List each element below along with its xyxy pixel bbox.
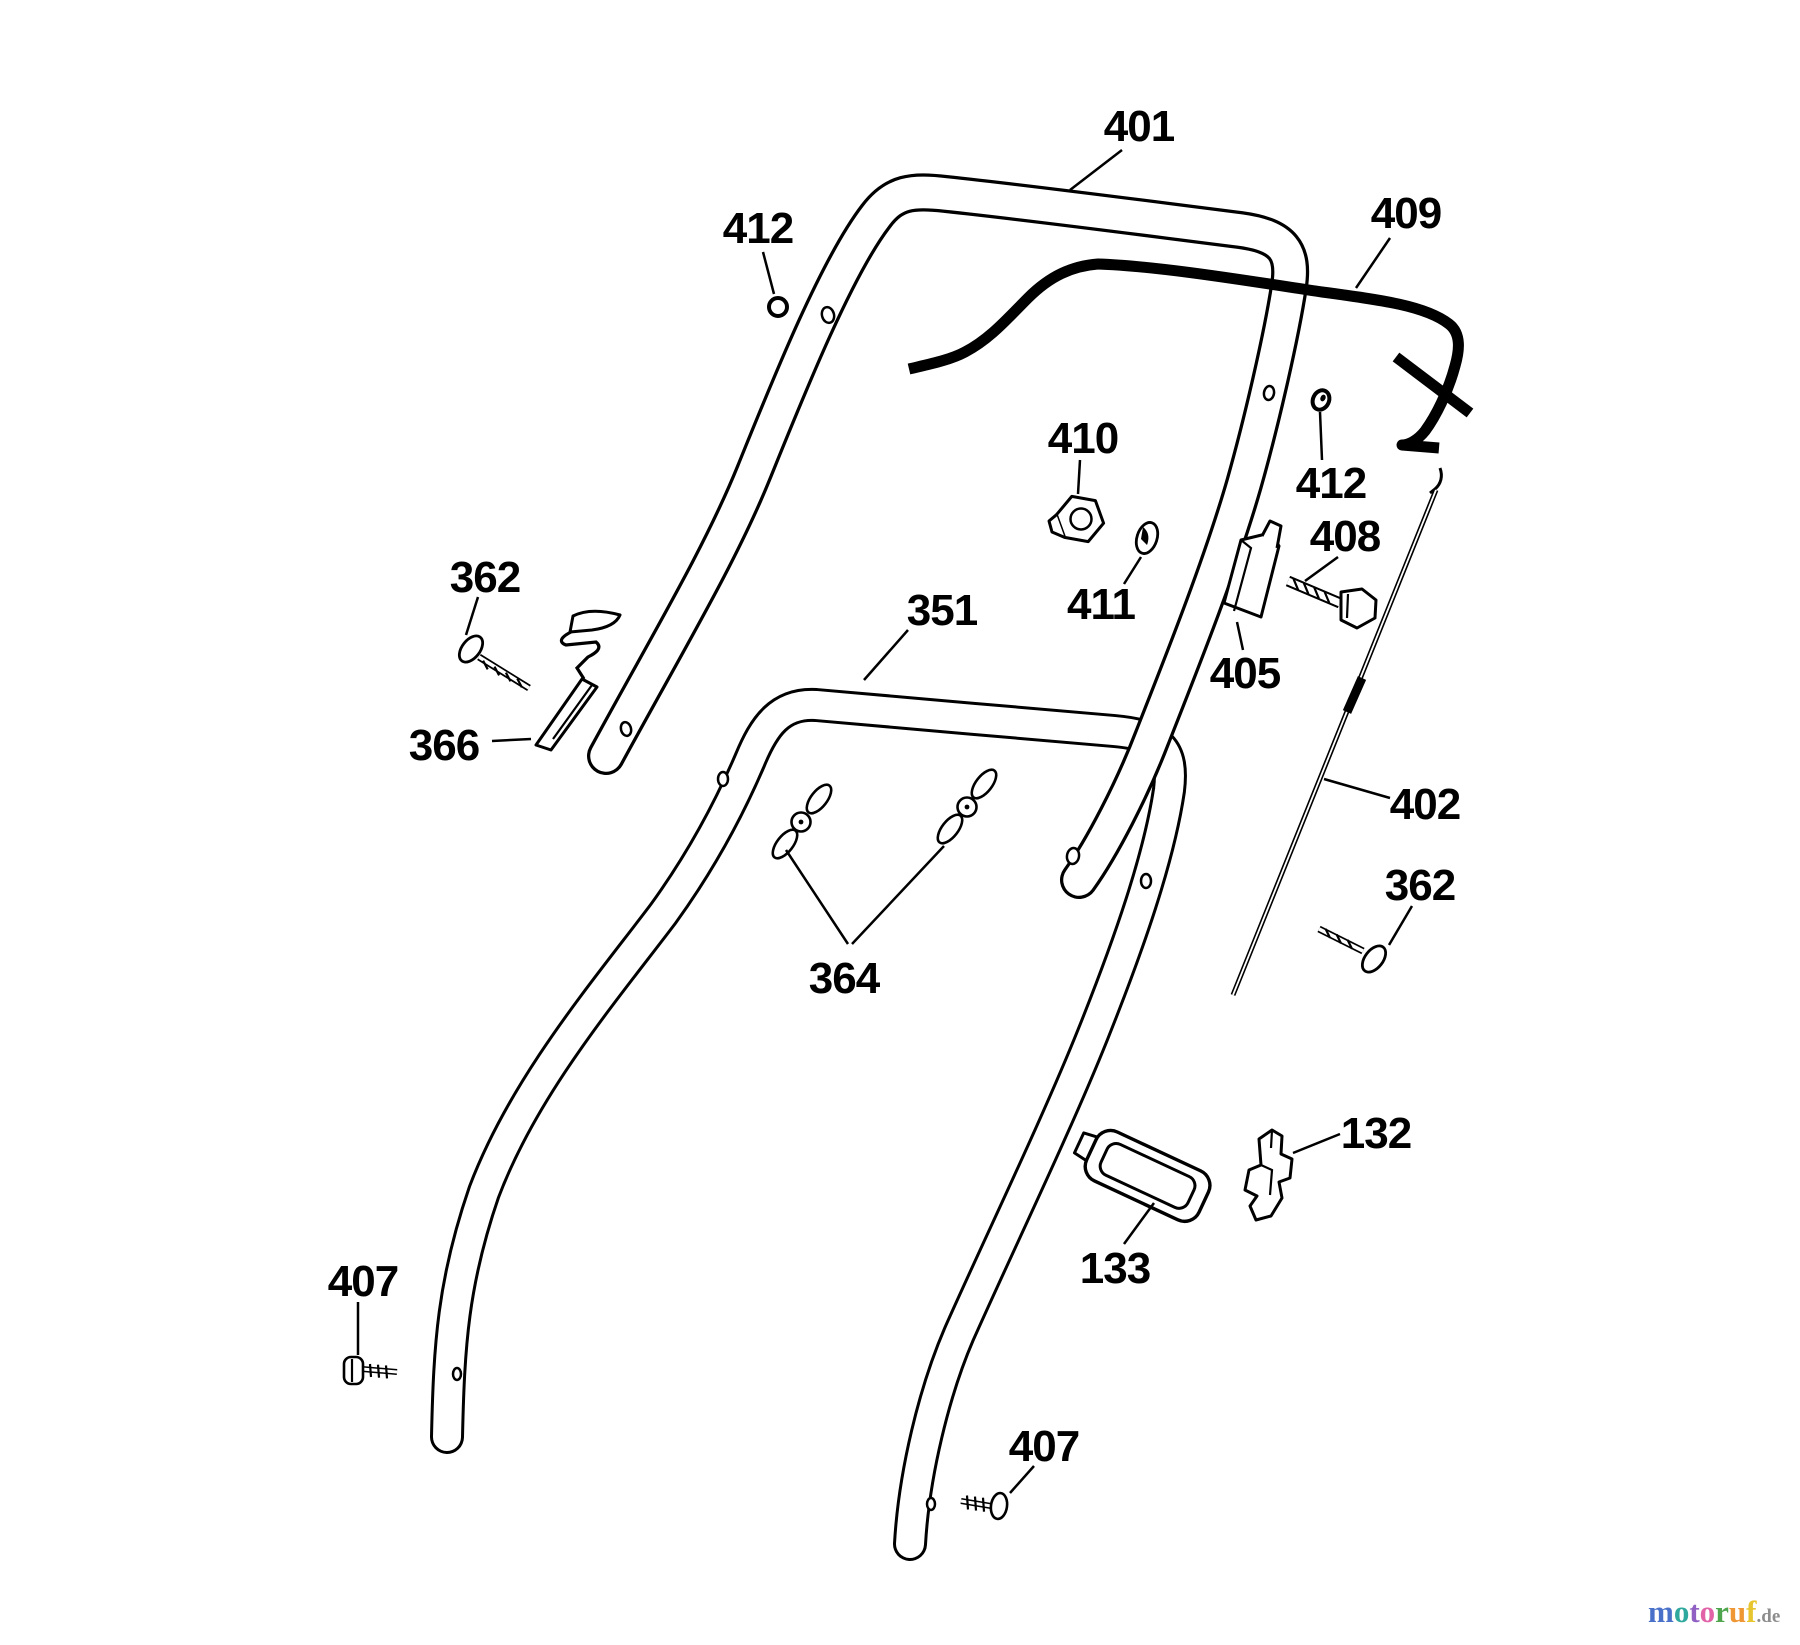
part-label-407-right: 407 xyxy=(1009,1422,1079,1471)
part-label-412-left: 412 xyxy=(723,204,793,253)
hex-nut-hole xyxy=(1071,509,1092,530)
logo-letter: t xyxy=(1689,1594,1699,1629)
logo-letter: m xyxy=(1648,1594,1674,1629)
part-label-364: 364 xyxy=(809,954,881,1003)
logo-letter: u xyxy=(1729,1594,1746,1629)
wing-nut-hole xyxy=(965,805,970,810)
part-label-362-left: 362 xyxy=(450,553,520,602)
motoruf-logo: motoruf.de xyxy=(1648,1594,1780,1630)
part-label-411: 411 xyxy=(1067,580,1136,629)
part-label-132: 132 xyxy=(1341,1109,1411,1158)
part-label-408: 408 xyxy=(1310,512,1381,561)
part-label-405: 405 xyxy=(1210,649,1281,698)
hole-lower-left-corner xyxy=(718,772,728,786)
part-label-410: 410 xyxy=(1048,414,1118,463)
motoruf-logo-text: motoruf xyxy=(1648,1594,1757,1629)
logo-letter: o xyxy=(1674,1594,1690,1629)
logo-letter: o xyxy=(1700,1594,1716,1629)
logo-letter: f xyxy=(1746,1594,1756,1629)
logo-letter: r xyxy=(1715,1594,1729,1629)
part-label-366: 366 xyxy=(409,721,479,770)
hole-lower-right-end xyxy=(927,1498,935,1510)
hole-lower-left-end xyxy=(453,1368,461,1380)
part-label-412-right: 412 xyxy=(1296,459,1366,508)
cap-nut-412-left xyxy=(769,298,787,316)
part-label-409: 409 xyxy=(1371,189,1441,238)
part-label-402: 402 xyxy=(1390,780,1460,829)
bolt-head-facet xyxy=(1347,594,1348,618)
part-label-362-right: 362 xyxy=(1385,861,1455,910)
part-label-351: 351 xyxy=(907,586,978,635)
diagram-background xyxy=(0,0,1800,1645)
part-label-407-left: 407 xyxy=(328,1257,398,1306)
motoruf-logo-suffix: .de xyxy=(1757,1606,1781,1627)
wing-nut-hole xyxy=(799,820,804,825)
hole-lower-right-leg xyxy=(1141,874,1151,888)
part-label-133: 133 xyxy=(1080,1244,1150,1293)
exploded-parts-diagram: 401 409 412 410 411 412 408 405 351 402 … xyxy=(0,0,1800,1645)
hole-upper-right-leg xyxy=(1263,385,1275,401)
parts-diagram-page: 401 409 412 410 411 412 408 405 351 402 … xyxy=(0,0,1800,1645)
part-label-401: 401 xyxy=(1104,102,1175,151)
screw-head xyxy=(344,1357,363,1384)
